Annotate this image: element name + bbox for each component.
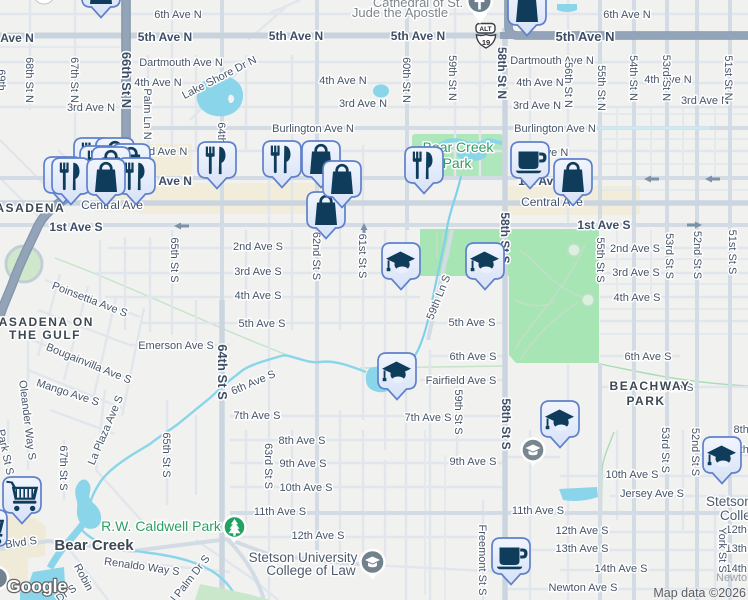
svg-text:69th: 69th bbox=[0, 69, 7, 90]
svg-text:THE GULF: THE GULF bbox=[9, 328, 81, 342]
svg-text:Newto: Newto bbox=[716, 572, 747, 584]
svg-text:College of: College of bbox=[720, 508, 748, 523]
svg-text:R.W. Caldwell Park: R.W. Caldwell Park bbox=[101, 518, 222, 534]
svg-text:Google: Google bbox=[7, 576, 68, 596]
svg-text:PARK: PARK bbox=[626, 394, 665, 408]
svg-text:68th St N: 68th St N bbox=[23, 57, 35, 103]
svg-text:8th Ave S: 8th Ave S bbox=[279, 435, 326, 447]
svg-text:64th St S: 64th St S bbox=[215, 344, 230, 400]
svg-text:11th Ave S: 11th Ave S bbox=[512, 505, 564, 517]
svg-text:6th Ave S: 6th Ave S bbox=[450, 351, 497, 363]
svg-text:2nd Ave S: 2nd Ave S bbox=[610, 243, 660, 255]
svg-text:12th Ave S: 12th Ave S bbox=[555, 525, 608, 537]
svg-text:8th Ave S: 8th Ave S bbox=[734, 424, 748, 436]
svg-text:63rd St S: 63rd St S bbox=[262, 443, 274, 489]
svg-text:55th St S: 55th St S bbox=[594, 237, 606, 282]
svg-text:Park: Park bbox=[443, 155, 473, 171]
svg-text:59th St S: 59th St S bbox=[452, 389, 464, 434]
svg-text:58th St N: 58th St N bbox=[495, 47, 509, 99]
svg-text:60th St N: 60th St N bbox=[400, 57, 412, 103]
svg-text:Dartmouth Ave N: Dartmouth Ave N bbox=[139, 57, 223, 69]
svg-text:Ave N: Ave N bbox=[0, 31, 34, 45]
svg-text:9th Ave S: 9th Ave S bbox=[280, 458, 327, 470]
svg-text:52nd St S: 52nd St S bbox=[691, 231, 703, 279]
svg-text:53rd St S: 53rd St S bbox=[663, 233, 675, 279]
svg-text:59th St N: 59th St N bbox=[446, 55, 458, 101]
svg-text:5th Ave N: 5th Ave N bbox=[269, 29, 323, 43]
svg-text:4th Ave N: 4th Ave N bbox=[134, 77, 182, 89]
svg-text:58th St S: 58th St S bbox=[499, 398, 513, 449]
svg-text:Dartmouth Ave N: Dartmouth Ave N bbox=[510, 55, 594, 67]
svg-text:4th Ave N: 4th Ave N bbox=[516, 77, 564, 89]
svg-text:10th Ave S: 10th Ave S bbox=[279, 482, 332, 494]
svg-text:ALT: ALT bbox=[479, 26, 491, 33]
svg-text:Stetson U: Stetson U bbox=[706, 494, 748, 509]
svg-text:3rd Ave N: 3rd Ave N bbox=[513, 100, 561, 112]
svg-text:Jersey Ave S: Jersey Ave S bbox=[620, 488, 684, 500]
svg-text:62nd St S: 62nd St S bbox=[310, 232, 322, 280]
svg-text:1st Ave S: 1st Ave S bbox=[49, 220, 102, 234]
svg-text:5th Ave N: 5th Ave N bbox=[391, 29, 445, 43]
svg-text:PASADENA ON: PASADENA ON bbox=[0, 315, 94, 329]
svg-text:Newton Ave S: Newton Ave S bbox=[549, 582, 618, 594]
svg-text:Freemont St S: Freemont St S bbox=[476, 525, 488, 596]
svg-text:5th Ave S: 5th Ave S bbox=[239, 318, 286, 330]
svg-text:5th Ave N: 5th Ave N bbox=[556, 29, 615, 44]
svg-text:56th St N: 56th St N bbox=[562, 62, 574, 108]
svg-text:3rd Ave N: 3rd Ave N bbox=[681, 95, 729, 107]
svg-text:3rd Ave N: 3rd Ave N bbox=[339, 98, 387, 110]
svg-text:5th Ave S: 5th Ave S bbox=[449, 317, 496, 329]
svg-text:Burlington Ave N: Burlington Ave N bbox=[514, 123, 596, 135]
svg-text:1st Ave S: 1st Ave S bbox=[577, 218, 630, 232]
svg-text:York St S: York St S bbox=[716, 527, 728, 572]
svg-text:Bear Creek: Bear Creek bbox=[54, 537, 134, 554]
svg-text:13th Ave S: 13th Ave S bbox=[555, 543, 608, 555]
svg-text:53rd St S: 53rd St S bbox=[659, 427, 671, 473]
svg-text:9th Ave S: 9th Ave S bbox=[450, 456, 497, 468]
svg-text:53rd St N: 53rd St N bbox=[660, 55, 672, 102]
svg-text:51st St S: 51st St S bbox=[726, 230, 738, 275]
svg-text:7th Ave S: 7th Ave S bbox=[234, 410, 281, 422]
svg-text:Palm Ln N: Palm Ln N bbox=[141, 88, 153, 139]
svg-text:67th St S: 67th St S bbox=[57, 445, 69, 490]
svg-text:BEACHWAY: BEACHWAY bbox=[610, 379, 691, 393]
svg-text:52nd St S: 52nd St S bbox=[689, 428, 701, 476]
svg-text:College of Law: College of Law bbox=[266, 563, 356, 578]
svg-text:5th Ave N: 5th Ave N bbox=[138, 30, 192, 44]
svg-text:3rd Ave S: 3rd Ave S bbox=[234, 266, 282, 278]
svg-text:51st St N: 51st St N bbox=[722, 55, 734, 100]
svg-text:Jude the Apostle: Jude the Apostle bbox=[352, 5, 448, 20]
svg-text:12th Ave S: 12th Ave S bbox=[291, 530, 344, 542]
svg-text:54th St N: 54th St N bbox=[627, 55, 639, 101]
svg-text:4th Ave S: 4th Ave S bbox=[614, 292, 661, 304]
svg-text:19: 19 bbox=[482, 38, 490, 47]
svg-text:65th St S: 65th St S bbox=[168, 237, 180, 282]
svg-text:4th Ave S: 4th Ave S bbox=[235, 290, 282, 302]
svg-text:Emerson Ave S: Emerson Ave S bbox=[138, 340, 214, 352]
svg-text:Map data ©2026: Map data ©2026 bbox=[653, 586, 746, 600]
svg-text:66th St N: 66th St N bbox=[119, 52, 134, 108]
svg-text:Fairfield Ave S: Fairfield Ave S bbox=[426, 375, 497, 387]
svg-text:7th Ave S: 7th Ave S bbox=[405, 412, 452, 424]
svg-text:65th St S: 65th St S bbox=[160, 432, 172, 477]
svg-text:2nd Ave S: 2nd Ave S bbox=[233, 241, 283, 253]
svg-text:Burlington Ave N: Burlington Ave N bbox=[272, 123, 354, 135]
svg-text:10th Ave S: 10th Ave S bbox=[605, 469, 658, 481]
svg-text:3rd Ave N: 3rd Ave N bbox=[67, 102, 115, 114]
svg-text:61st St S: 61st St S bbox=[356, 234, 368, 279]
svg-text:67th St N: 67th St N bbox=[68, 57, 80, 103]
svg-text:14th Ave S: 14th Ave S bbox=[594, 563, 647, 575]
svg-text:11th Ave S: 11th Ave S bbox=[254, 506, 306, 518]
svg-text:PASADENA: PASADENA bbox=[0, 201, 65, 215]
svg-text:6th Ave N: 6th Ave N bbox=[603, 9, 651, 21]
svg-text:64th: 64th bbox=[215, 122, 227, 143]
svg-text:3rd Ave S: 3rd Ave S bbox=[612, 267, 660, 279]
svg-text:4th Ave N: 4th Ave N bbox=[319, 75, 367, 87]
svg-text:6th Ave N: 6th Ave N bbox=[154, 9, 202, 21]
svg-text:6th Ave S: 6th Ave S bbox=[625, 351, 672, 363]
svg-text:55th St N: 55th St N bbox=[595, 65, 607, 111]
